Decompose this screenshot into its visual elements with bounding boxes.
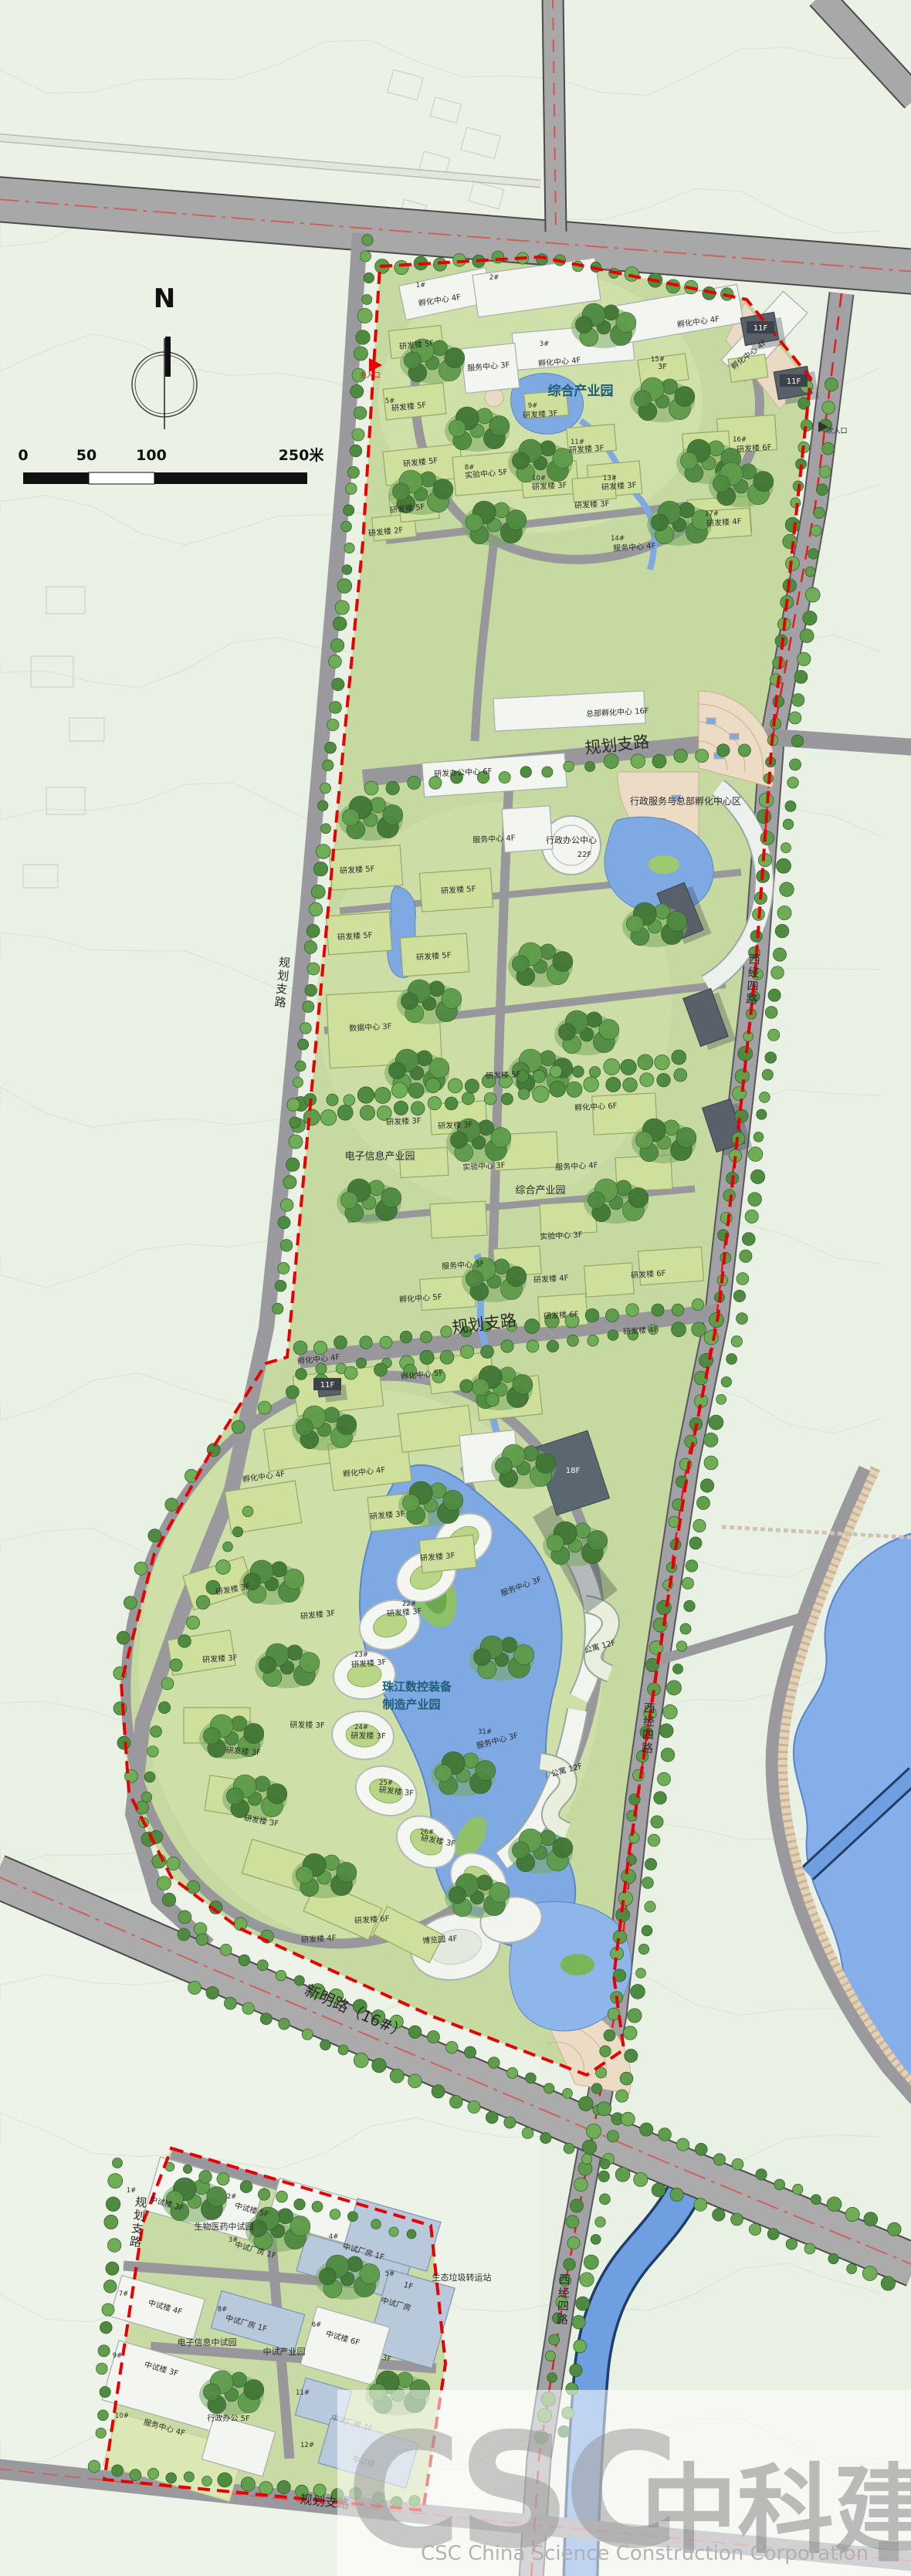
scale-label: 250米 — [279, 446, 325, 464]
scale-label: 100 — [136, 447, 167, 464]
area-label: 珠江数控装备 — [382, 1680, 452, 1694]
building-label: 3# — [229, 2236, 239, 2244]
building-label: 2# — [489, 274, 500, 282]
area-label: 行政办公 5F — [207, 2413, 250, 2423]
building-label: 17# — [705, 510, 719, 518]
building-label: 8# — [218, 2306, 228, 2314]
scale-label: 50 — [76, 447, 97, 464]
building-label: 23# — [354, 1651, 368, 1659]
area-label: 综合产业园 — [515, 1185, 565, 1197]
area-label: 电子信息中试园 — [178, 2337, 237, 2348]
building-label: 9# — [528, 402, 538, 410]
entrance-label: 次入口 — [826, 426, 847, 435]
area-label: 综合产业园 — [548, 383, 614, 399]
building-label: 15# — [651, 356, 665, 364]
building-label: 7# — [119, 2290, 129, 2298]
building-label: 11F — [754, 324, 768, 333]
watermark-logo — [879, 2541, 899, 2561]
building — [502, 806, 553, 852]
watermark: CSC 中科建 CSC China Science Construction C… — [337, 2390, 911, 2576]
building-label: 14# — [611, 535, 625, 543]
building-label: 研发楼 3F — [290, 1720, 325, 1730]
master-plan-map: N 050100250米 规划支路规划支路规划支路规划支路规划支路西经四路西经四… — [0, 0, 911, 2576]
scale-label: 0 — [18, 447, 28, 464]
area-label: 生态垃圾转运站 — [432, 2272, 492, 2283]
building-label: 13# — [603, 475, 617, 482]
area-label: 行政服务与总部孵化中心区 — [630, 795, 741, 807]
building — [638, 1247, 704, 1285]
building-label: 1# — [416, 282, 426, 289]
building-label: 11# — [296, 2389, 310, 2397]
building-label: 4# — [329, 2233, 339, 2241]
north-label: N — [154, 283, 175, 314]
building-label: 1# — [127, 2187, 137, 2195]
area-label: 22F — [577, 851, 592, 859]
building-label: 2# — [227, 2193, 237, 2201]
building-label: 24# — [354, 1724, 368, 1731]
area-label: 生物医药中试园 — [195, 2221, 254, 2232]
building-label: 10# — [115, 2412, 129, 2420]
building-label: 3# — [540, 340, 550, 348]
building — [584, 1263, 635, 1297]
area-label: 行政办公中心 — [546, 834, 597, 845]
building-label: 11F — [787, 377, 801, 386]
building-label: 11# — [571, 438, 584, 446]
building-label: 10# — [532, 475, 546, 482]
area-label: 电子信息产业园 — [344, 1150, 415, 1163]
building-label: 9# — [113, 2352, 123, 2360]
building-label: 研发楼 3F — [351, 1731, 386, 1741]
building-label: 11F — [320, 1381, 335, 1390]
building-label: 3F — [658, 363, 667, 371]
building-label: 8# — [465, 464, 475, 472]
building-label: 5# — [385, 398, 395, 405]
area-label: 制造产业园 — [382, 1698, 440, 1711]
building — [430, 1201, 487, 1238]
building-label: 31# — [478, 1728, 492, 1736]
area-label: 中试产业园 — [263, 2346, 306, 2357]
building-label: 16# — [733, 436, 747, 444]
building-label: 6# — [312, 2321, 322, 2329]
watermark-caption: CSC China Science Construction Corporati… — [421, 2542, 869, 2565]
building-label: 5# — [385, 2270, 395, 2278]
building-label: 18F — [566, 1467, 581, 1475]
building-label: 12# — [300, 2442, 314, 2449]
entrance-label: 主入口 — [359, 371, 380, 380]
building-label: 25# — [379, 1779, 393, 1787]
site-plan-svg: N 050100250米 规划支路规划支路规划支路规划支路规划支路西经四路西经四… — [0, 0, 911, 2576]
building-label: 26# — [420, 1829, 434, 1836]
building-label: 22# — [402, 1600, 416, 1608]
